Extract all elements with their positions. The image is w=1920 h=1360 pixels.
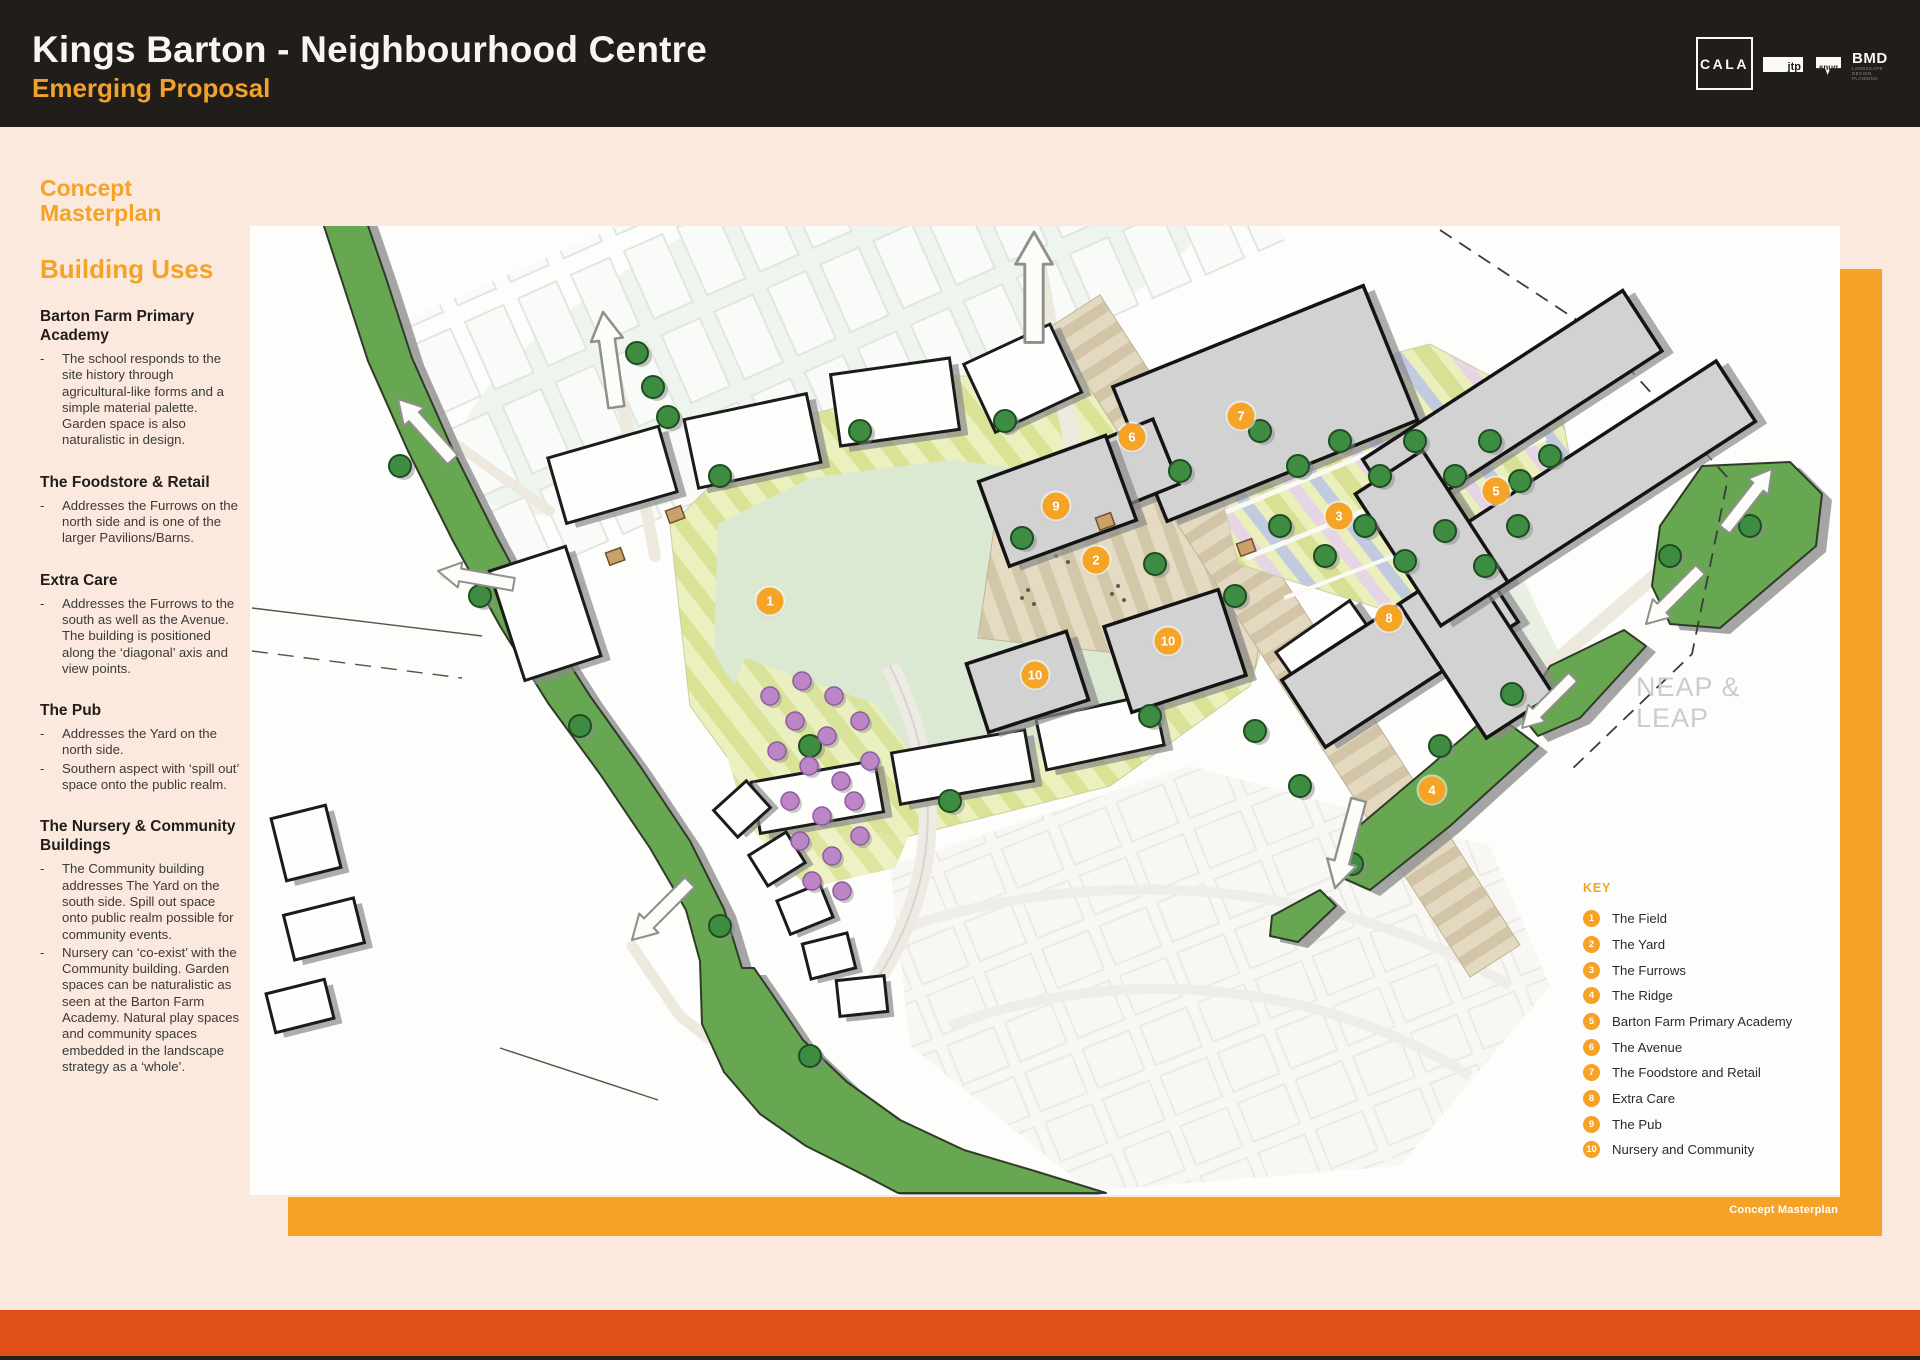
map-marker-9: 9 xyxy=(1043,493,1070,520)
map-marker-10: 10 xyxy=(1155,628,1182,655)
page-title: Kings Barton - Neighbourhood Centre xyxy=(32,30,707,70)
key-number-badge: 8 xyxy=(1583,1090,1600,1107)
key-number-badge: 10 xyxy=(1583,1141,1600,1158)
building-use-section: Barton Farm Primary Academy-The school r… xyxy=(40,307,244,449)
building-use-title: The Foodstore & Retail xyxy=(40,473,244,492)
key-label: Barton Farm Primary Academy xyxy=(1612,1014,1792,1029)
building-use-sections: Barton Farm Primary Academy-The school r… xyxy=(40,307,244,1075)
cala-logo: CALA xyxy=(1696,37,1753,90)
key-number-badge: 7 xyxy=(1583,1064,1600,1081)
key-label: The Avenue xyxy=(1612,1040,1682,1055)
footer-bar xyxy=(0,1310,1920,1356)
building-use-title: Extra Care xyxy=(40,571,244,590)
bmd-logo-subtext: LANDSCAPEDESIGNPLANNING xyxy=(1852,66,1888,82)
neap-leap-label: NEAP & LEAP xyxy=(1636,672,1768,734)
building-use-section: Extra Care-Addresses the Furrows to the … xyxy=(40,571,244,677)
key-label: Extra Care xyxy=(1612,1091,1675,1106)
building-use-section: The Nursery & Community Buildings-The Co… xyxy=(40,817,244,1075)
map-marker-10: 10 xyxy=(1022,662,1049,689)
building-use-bullet: -The Community building addresses The Ya… xyxy=(40,861,244,942)
key-number-badge: 3 xyxy=(1583,962,1600,979)
map-key-item: 7The Foodstore and Retail xyxy=(1583,1064,1833,1082)
building-use-section: The Foodstore & Retail-Addresses the Fur… xyxy=(40,473,244,547)
map-marker-5: 5 xyxy=(1483,478,1510,505)
building-use-section: The Pub-Addresses the Yard on the north … xyxy=(40,701,244,793)
key-number-badge: 2 xyxy=(1583,936,1600,953)
map-key-item: 6The Avenue xyxy=(1583,1038,1833,1056)
snug-logo-text: snug xyxy=(1819,63,1838,72)
key-label: The Field xyxy=(1612,911,1667,926)
map-key-item: 8Extra Care xyxy=(1583,1090,1833,1108)
map-marker-8: 8 xyxy=(1376,605,1403,632)
key-label: The Pub xyxy=(1612,1117,1662,1132)
right-accent-bar xyxy=(1840,269,1882,1236)
key-number-badge: 5 xyxy=(1583,1013,1600,1030)
map-key-items: 1The Field2The Yard3The Furrows4The Ridg… xyxy=(1583,910,1833,1159)
map-key-item: 10Nursery and Community xyxy=(1583,1141,1833,1159)
building-uses-heading: Building Uses xyxy=(40,255,244,283)
page-subtitle: Emerging Proposal xyxy=(32,74,270,102)
building-use-bullet: -The school responds to the site history… xyxy=(40,351,244,449)
building-use-title: The Pub xyxy=(40,701,244,720)
snug-logo: snug xyxy=(1816,57,1841,75)
map-key-item: 3The Furrows xyxy=(1583,961,1833,979)
map-marker-7: 7 xyxy=(1228,403,1255,430)
bmd-logo: BMD LANDSCAPEDESIGNPLANNING xyxy=(1852,52,1888,82)
key-label: The Yard xyxy=(1612,937,1665,952)
masterplan-map: NEAP & LEAP KEY 1The Field2The Yard3The … xyxy=(250,226,1840,1195)
map-key-item: 4The Ridge xyxy=(1583,987,1833,1005)
key-number-badge: 6 xyxy=(1583,1039,1600,1056)
map-marker-3: 3 xyxy=(1326,503,1353,530)
key-label: The Ridge xyxy=(1612,988,1673,1003)
building-use-bullet: -Addresses the Furrows on the north side… xyxy=(40,498,244,547)
key-number-badge: 4 xyxy=(1583,987,1600,1004)
poster-page: Kings Barton - Neighbourhood Centre Emer… xyxy=(0,0,1920,1360)
key-label: Nursery and Community xyxy=(1612,1142,1754,1157)
building-use-bullet: -Addresses the Yard on the north side. xyxy=(40,726,244,759)
key-number-badge: 1 xyxy=(1583,910,1600,927)
map-marker-2: 2 xyxy=(1083,547,1110,574)
key-number-badge: 9 xyxy=(1583,1116,1600,1133)
bmd-logo-text: BMD xyxy=(1852,52,1888,66)
map-key-item: 9The Pub xyxy=(1583,1116,1833,1134)
key-label: The Furrows xyxy=(1612,963,1686,978)
building-use-bullet: -Southern aspect with ‘spill out’ space … xyxy=(40,761,244,794)
header: Kings Barton - Neighbourhood Centre Emer… xyxy=(0,0,1920,127)
bottom-caption-bar: Concept Masterplan xyxy=(288,1197,1882,1236)
cala-logo-text: CALA xyxy=(1700,56,1749,72)
building-use-title: Barton Farm Primary Academy xyxy=(40,307,244,345)
footer-edge xyxy=(0,1356,1920,1360)
key-label: The Foodstore and Retail xyxy=(1612,1065,1761,1080)
building-use-bullet: -Nursery can ‘co-exist’ with the Communi… xyxy=(40,945,244,1075)
map-key-title: KEY xyxy=(1583,881,1833,895)
jtp-logo-text: jtp xyxy=(1788,61,1801,73)
building-use-title: The Nursery & Community Buildings xyxy=(40,817,244,855)
map-key-item: 2The Yard xyxy=(1583,936,1833,954)
sidebar: Concept Masterplan Building Uses Barton … xyxy=(40,176,244,1075)
map-marker-4: 4 xyxy=(1419,777,1446,804)
map-key-item: 5Barton Farm Primary Academy xyxy=(1583,1013,1833,1031)
map-marker-6: 6 xyxy=(1119,424,1146,451)
map-key-item: 1The Field xyxy=(1583,910,1833,928)
map-marker-1: 1 xyxy=(757,588,784,615)
building-use-bullet: -Addresses the Furrows to the south as w… xyxy=(40,596,244,677)
map-key: KEY 1The Field2The Yard3The Furrows4The … xyxy=(1583,881,1833,1167)
concept-masterplan-heading: Concept Masterplan xyxy=(40,176,244,226)
jtp-logo: jtp xyxy=(1763,57,1803,72)
map-caption: Concept Masterplan xyxy=(1729,1204,1838,1216)
